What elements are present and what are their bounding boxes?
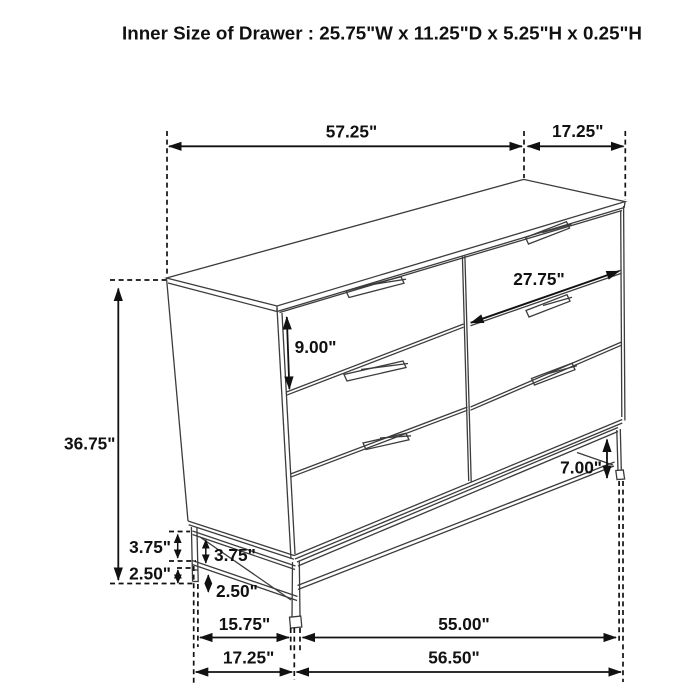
svg-text:2.50": 2.50"	[216, 581, 258, 601]
svg-text:55.00": 55.00"	[438, 614, 489, 634]
svg-text:56.50": 56.50"	[428, 648, 479, 668]
svg-text:27.75": 27.75"	[513, 269, 564, 289]
svg-text:9.00": 9.00"	[295, 337, 337, 357]
svg-text:57.25": 57.25"	[326, 122, 377, 142]
svg-text:15.75": 15.75"	[219, 614, 270, 634]
svg-text:3.75": 3.75"	[129, 537, 171, 557]
svg-text:7.00": 7.00"	[560, 458, 602, 478]
svg-text:3.75": 3.75"	[214, 545, 256, 565]
svg-text:17.25": 17.25"	[223, 648, 274, 668]
svg-text:Inner Size of Drawer : 25.75"W: Inner Size of Drawer : 25.75"W x 11.25"D…	[122, 23, 642, 44]
svg-text:17.25": 17.25"	[552, 121, 603, 141]
svg-text:36.75": 36.75"	[64, 434, 115, 454]
svg-text:2.50": 2.50"	[129, 564, 171, 584]
